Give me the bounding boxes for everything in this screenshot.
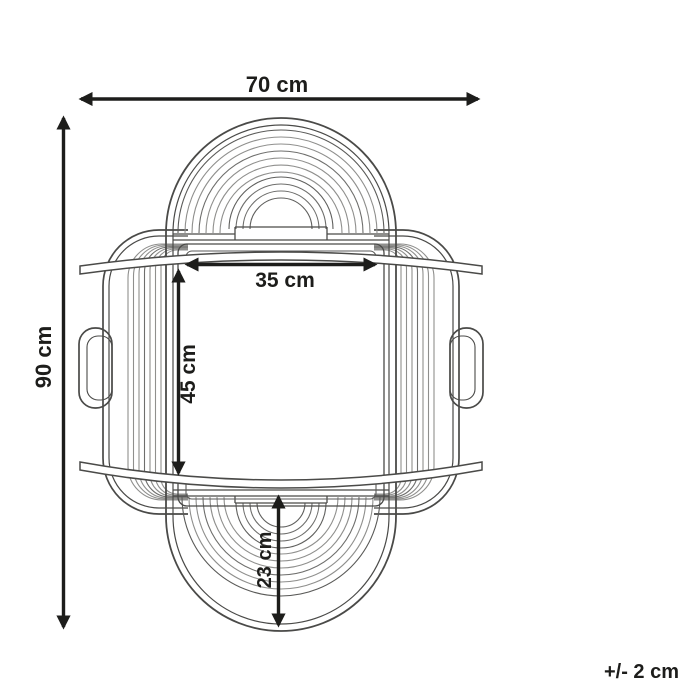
seat-width-label: 35 cm <box>255 269 315 292</box>
armrest-handle-outer <box>79 328 112 408</box>
arc <box>203 497 359 575</box>
dimension-diagram-page: 70 cm 90 cm 35 cm 45 cm 23 cm +/- 2 cm <box>0 0 700 700</box>
arc <box>196 497 366 582</box>
arc <box>250 503 312 534</box>
arch-base-bar <box>173 227 389 240</box>
tolerance-note: +/- 2 cm <box>604 661 679 683</box>
dimension-diagram: 70 cm 90 cm 35 cm 45 cm 23 cm +/- 2 cm <box>0 0 700 700</box>
armrest-handle-inner <box>87 336 112 400</box>
seat-height-label: 45 cm <box>177 344 200 404</box>
arc <box>243 191 319 229</box>
overall-width-label: 70 cm <box>246 72 308 97</box>
arc <box>250 198 312 229</box>
arc <box>206 158 356 233</box>
chair-line-drawing <box>79 118 483 631</box>
base-height-label: 23 cm <box>254 532 276 589</box>
base-height-dimension: 23 cm <box>254 497 279 625</box>
base-bar <box>173 490 389 503</box>
arc <box>192 144 370 233</box>
overall-width-dimension: 70 cm <box>81 72 478 99</box>
overall-height-label: 90 cm <box>31 326 56 388</box>
overall-height-dimension: 90 cm <box>31 118 64 627</box>
arc <box>220 172 342 233</box>
arc <box>199 151 363 233</box>
